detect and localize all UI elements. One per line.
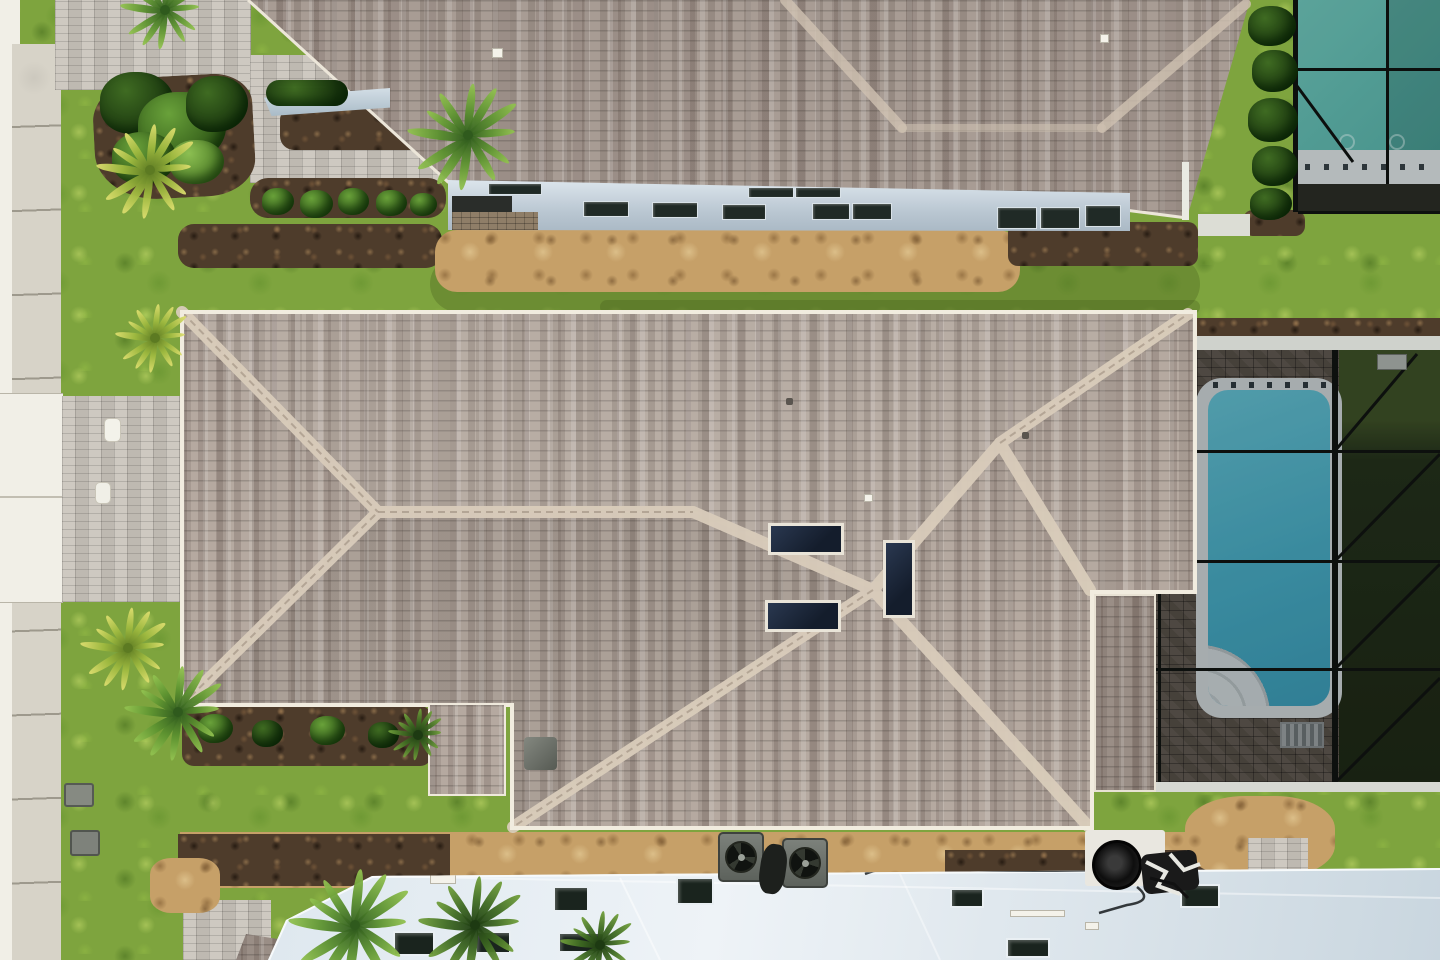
wall-window xyxy=(722,204,766,220)
screen-braces xyxy=(1155,336,1440,792)
bottom-window xyxy=(553,886,589,912)
wall-window xyxy=(748,187,794,198)
porch-roof xyxy=(428,703,506,796)
enclosure-bottom-line xyxy=(1298,211,1440,214)
wall-window xyxy=(583,201,629,217)
apron-seam xyxy=(0,496,63,498)
skylight-2 xyxy=(765,600,841,632)
utility-box-3 xyxy=(524,737,557,770)
bottom-window xyxy=(393,931,435,956)
stone-wainscot xyxy=(452,212,538,230)
bottom-window xyxy=(950,888,984,908)
roof-strip-vent xyxy=(1010,910,1065,917)
ac-fan-hub-1 xyxy=(738,854,745,861)
roof-pipe-1 xyxy=(786,398,793,405)
enclosure-bottom-frame xyxy=(1155,782,1440,792)
lawn-marker-1 xyxy=(104,418,121,442)
skylight-1 xyxy=(768,523,844,555)
ac-unit-1 xyxy=(718,832,764,882)
lawn-marker-2 xyxy=(95,482,111,504)
wall-window xyxy=(795,187,841,198)
wing-roof xyxy=(1094,594,1156,792)
paver-driveway xyxy=(62,396,182,602)
roof-pipe-2 xyxy=(1022,432,1029,439)
roof-vent-top-1 xyxy=(492,48,503,58)
roof-vent-top-2 xyxy=(1100,34,1109,43)
bottom-window xyxy=(475,931,511,954)
sand-patch-left xyxy=(150,858,220,913)
wall-window xyxy=(852,203,892,220)
utility-box-2 xyxy=(70,830,100,856)
entry-hedge xyxy=(266,80,348,106)
wall-window xyxy=(652,202,698,218)
downspout xyxy=(1182,162,1189,220)
aerial-photo-scene xyxy=(0,0,1440,960)
screen-tint-top xyxy=(1298,0,1440,184)
skylight-3 xyxy=(883,540,915,618)
wall-window xyxy=(488,183,542,195)
ac-fan-hub-2 xyxy=(802,860,809,867)
roof-vent-mid xyxy=(864,494,873,502)
wall-window xyxy=(812,203,850,220)
pool-enclosure-mid xyxy=(1155,336,1440,792)
pool-enclosure-top xyxy=(1293,0,1440,216)
ac-unit-2 xyxy=(782,838,828,888)
bottom-window xyxy=(676,877,714,905)
bottom-window xyxy=(558,932,604,953)
enclosure-corner-equipment xyxy=(1377,354,1407,370)
street-corner-pad xyxy=(0,0,20,46)
wall-window xyxy=(1085,205,1121,227)
pool-pipes xyxy=(1140,848,1230,908)
roof-clip-1 xyxy=(1085,922,1099,930)
bottom-window xyxy=(1006,938,1050,958)
middle-house-roof-lines xyxy=(180,310,1197,830)
driveway-apron xyxy=(0,393,63,603)
wall-window xyxy=(997,207,1037,229)
wall-window xyxy=(1040,207,1080,229)
pool-pump-fan xyxy=(1092,840,1142,890)
utility-box-1 xyxy=(64,783,94,807)
